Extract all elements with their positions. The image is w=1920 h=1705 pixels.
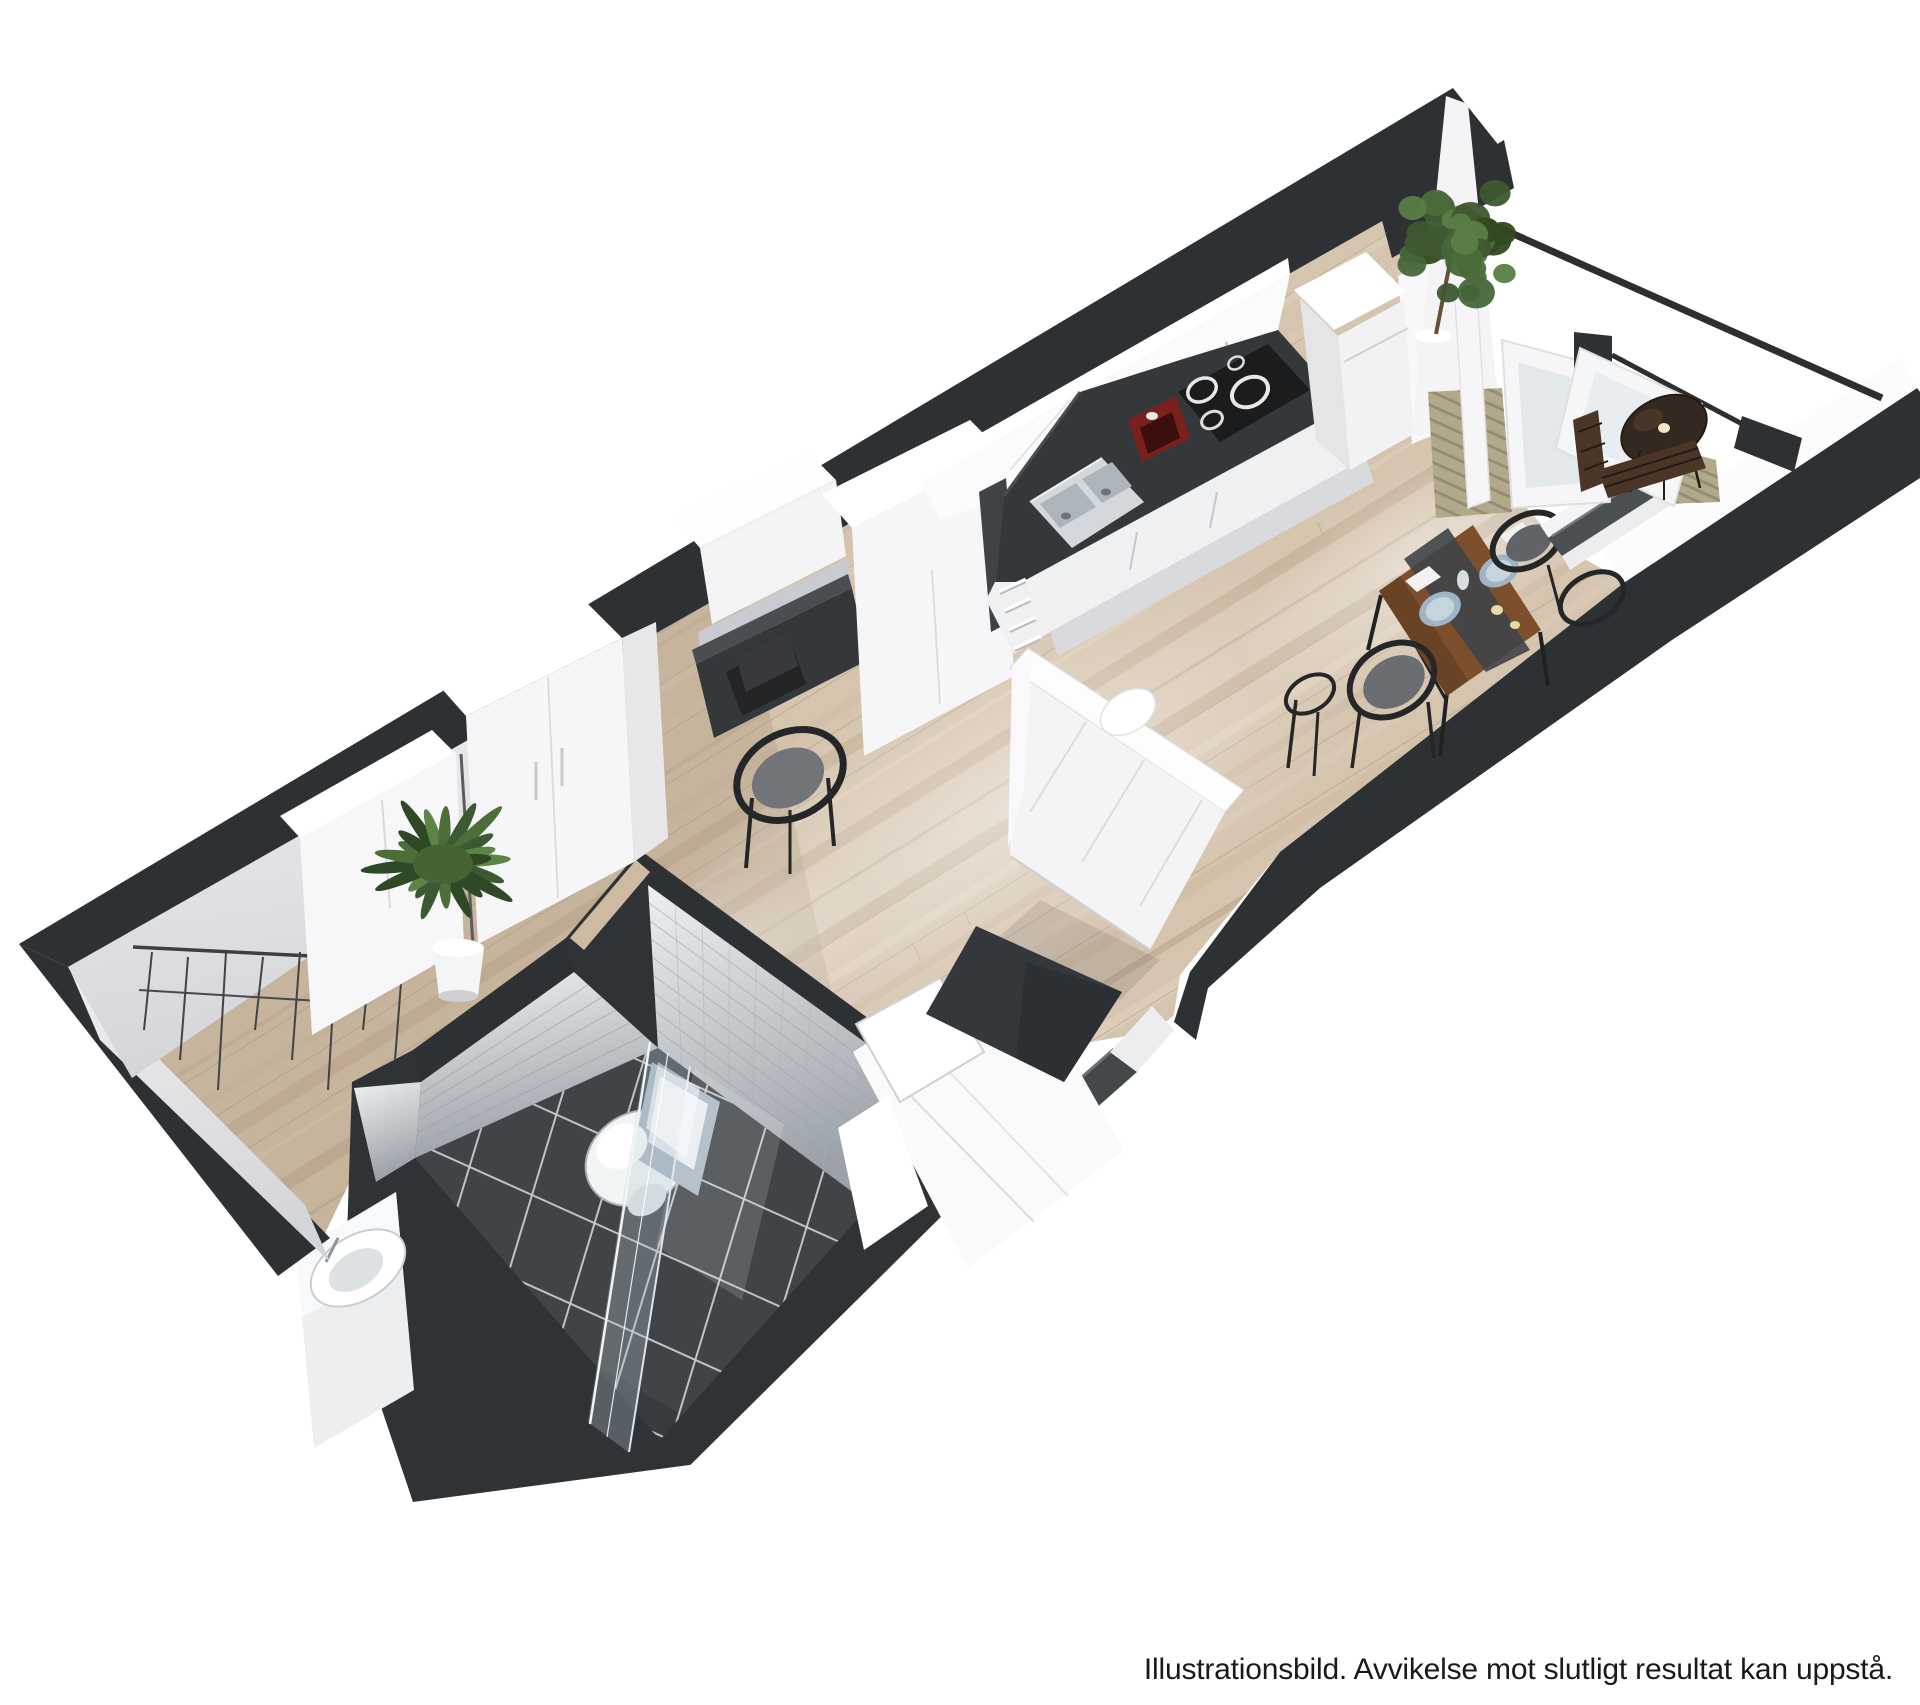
- svg-text:Illustrationsbild. Avvikelse m: Illustrationsbild. Avvikelse mot slutlig…: [1144, 1653, 1893, 1686]
